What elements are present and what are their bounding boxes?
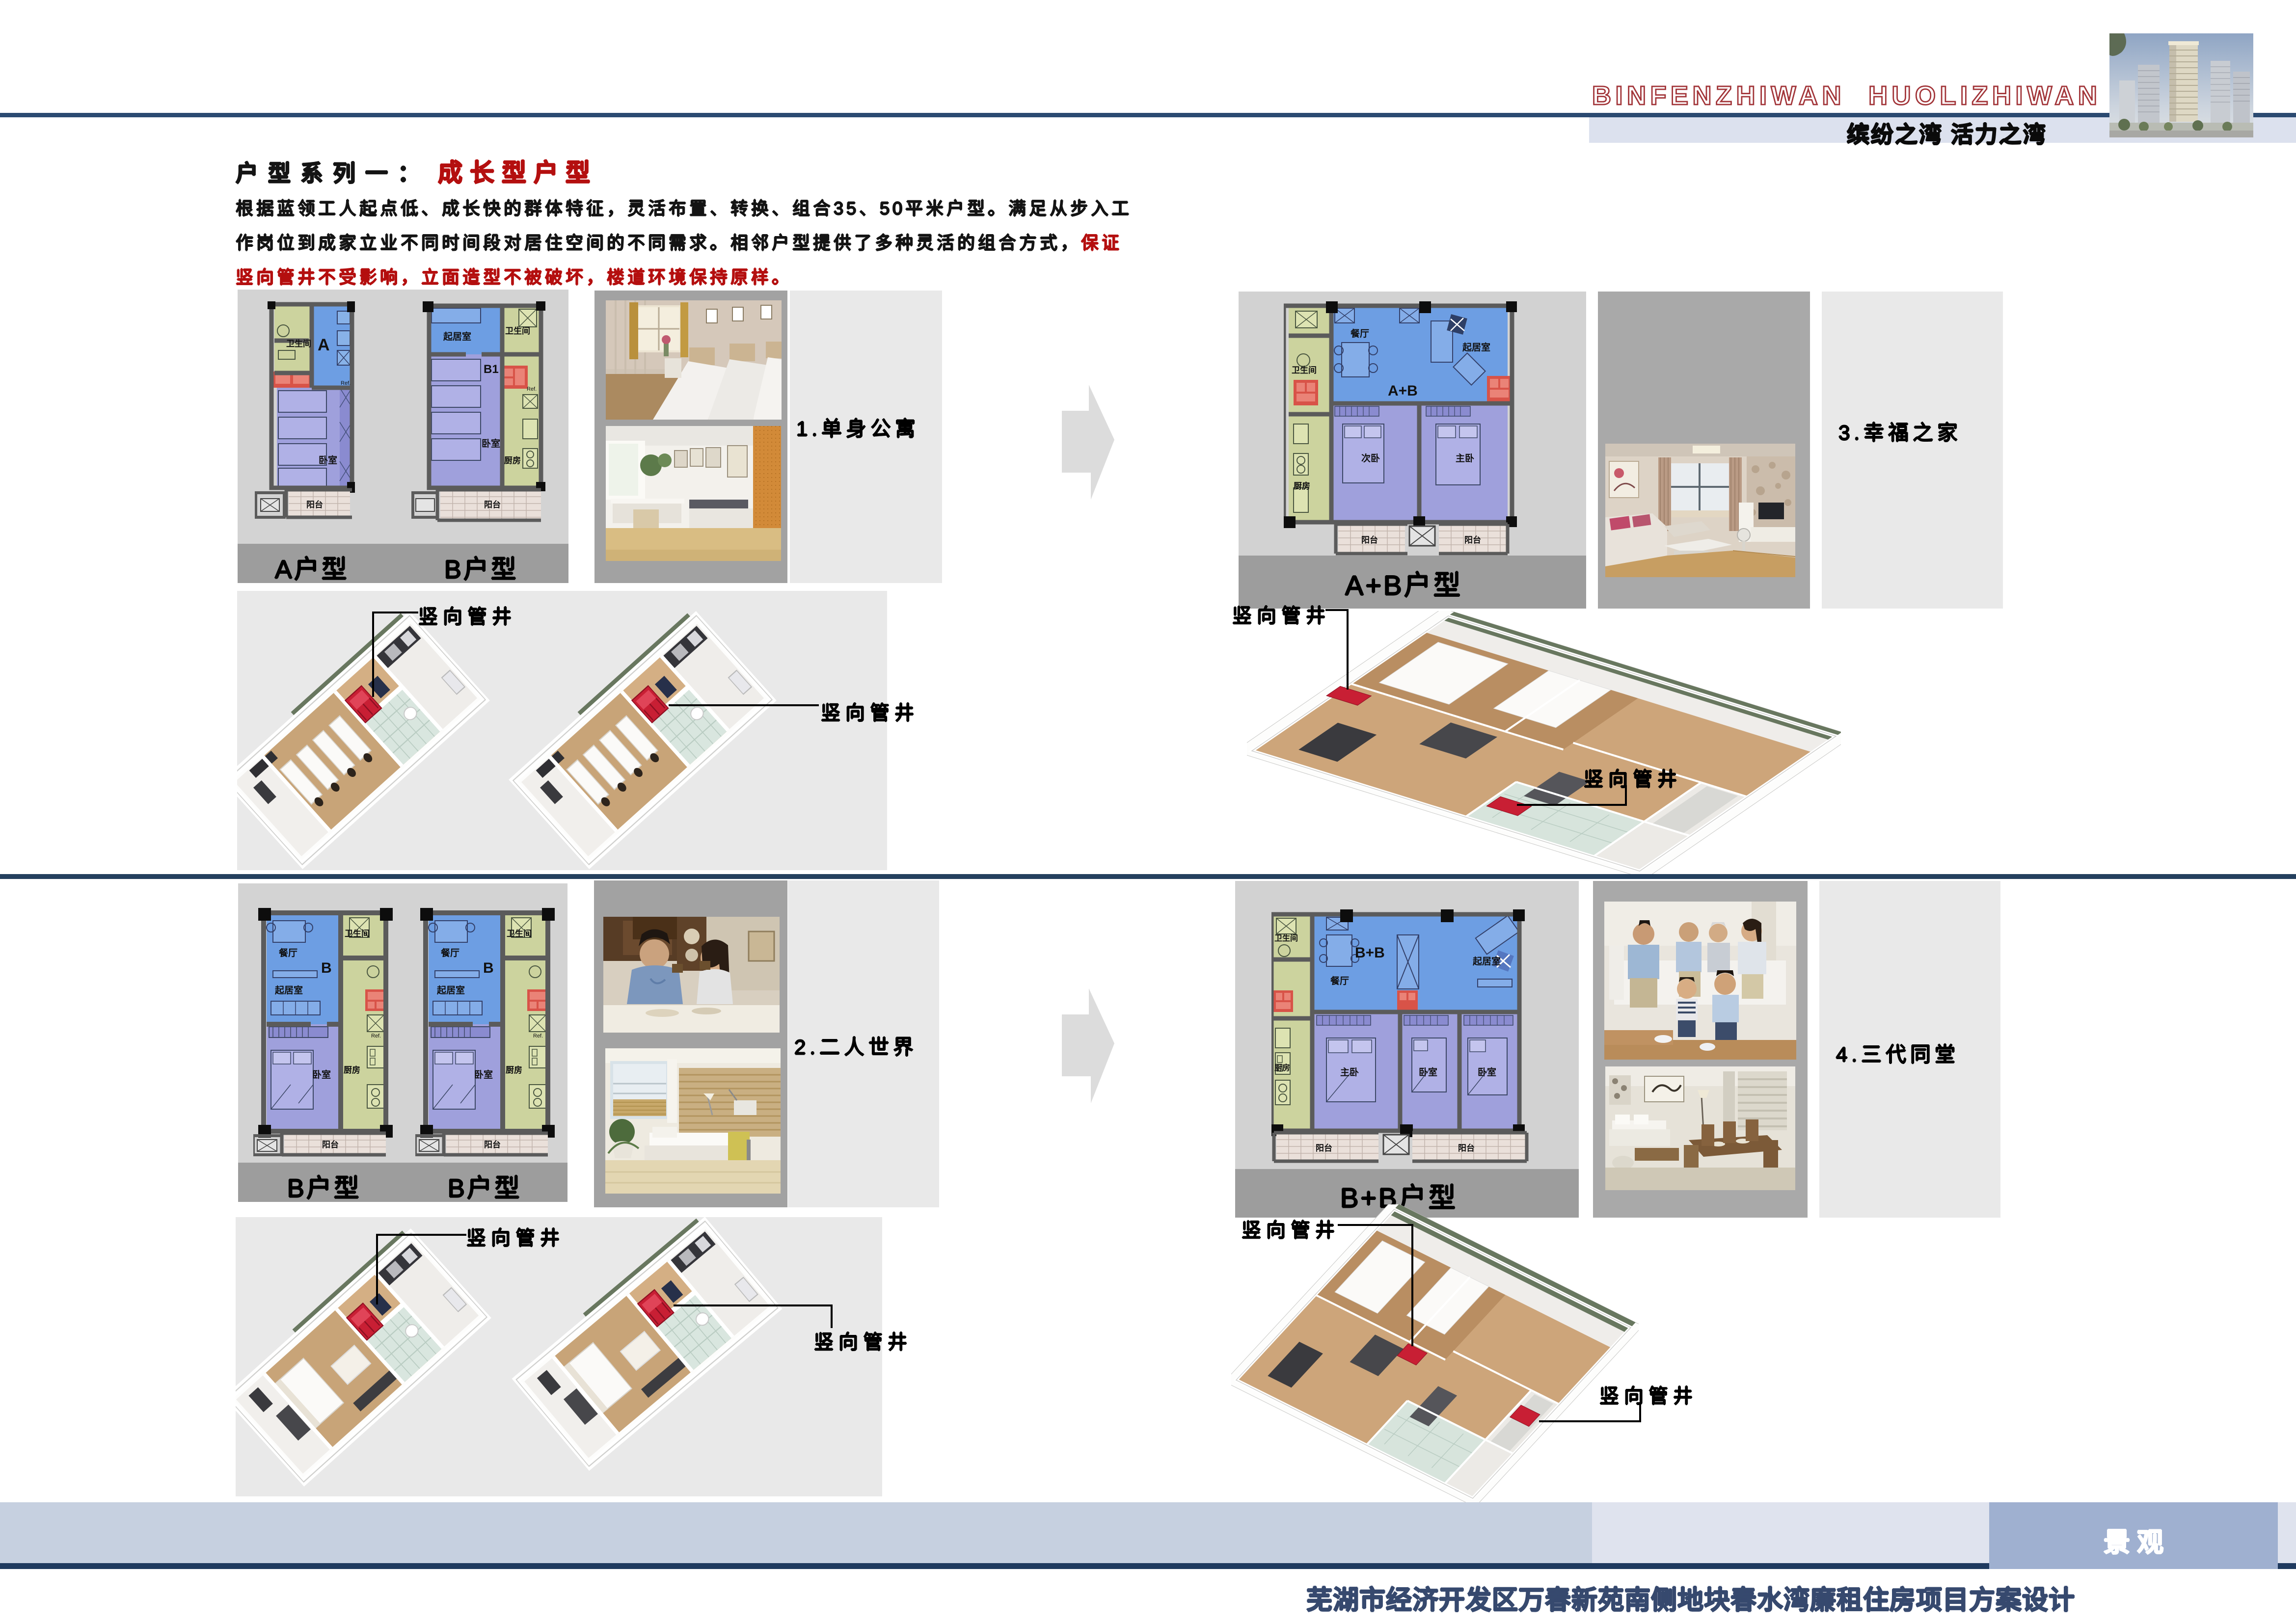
svg-text:起居室: 起居室	[1462, 342, 1490, 353]
svg-text:Ref.: Ref.	[533, 1033, 543, 1039]
svg-text:厨房: 厨房	[344, 1065, 360, 1075]
svg-text:阳台: 阳台	[484, 500, 501, 509]
svg-text:卫生间: 卫生间	[1274, 933, 1298, 943]
svg-text:卫生间: 卫生间	[507, 929, 532, 938]
svg-text:阳台: 阳台	[1464, 535, 1481, 545]
svg-text:阳台: 阳台	[1316, 1143, 1332, 1153]
svg-text:卧室: 卧室	[1478, 1066, 1496, 1078]
svg-text:厨房: 厨房	[1274, 1063, 1290, 1072]
svg-text:阳台: 阳台	[1458, 1143, 1475, 1153]
svg-text:起居室: 起居室	[1472, 956, 1501, 967]
svg-text:卫生间: 卫生间	[505, 326, 530, 336]
svg-text:阳台: 阳台	[306, 500, 323, 509]
svg-text:A+B: A+B	[1388, 383, 1418, 399]
svg-text:卫生间: 卫生间	[286, 339, 311, 348]
svg-text:餐厅: 餐厅	[441, 947, 459, 958]
svg-text:Ref.: Ref.	[527, 386, 537, 392]
svg-text:厨房: 厨房	[506, 1065, 522, 1075]
svg-text:A: A	[318, 336, 330, 354]
svg-text:餐厅: 餐厅	[1330, 975, 1349, 986]
svg-text:卧室: 卧室	[312, 1069, 331, 1080]
svg-text:起居室: 起居室	[436, 984, 465, 996]
svg-text:B: B	[321, 960, 332, 976]
svg-text:主卧: 主卧	[1456, 453, 1474, 464]
svg-text:阳台: 阳台	[484, 1140, 501, 1149]
svg-text:卧室: 卧室	[474, 1069, 493, 1080]
svg-text:Ref.: Ref.	[371, 1033, 381, 1039]
svg-text:Ref.: Ref.	[341, 380, 351, 386]
svg-text:阳台: 阳台	[1361, 535, 1378, 545]
svg-text:B: B	[483, 960, 494, 976]
svg-text:B+B: B+B	[1355, 945, 1385, 961]
svg-text:次卧: 次卧	[1361, 452, 1380, 464]
svg-text:卧室: 卧室	[1419, 1066, 1437, 1078]
svg-text:起居室: 起居室	[274, 984, 303, 996]
svg-text:B1: B1	[484, 363, 499, 376]
svg-text:起居室: 起居室	[443, 331, 471, 342]
svg-text:厨房: 厨房	[1294, 481, 1310, 491]
svg-text:卫生间: 卫生间	[1292, 365, 1317, 375]
svg-text:主卧: 主卧	[1340, 1067, 1359, 1078]
svg-text:阳台: 阳台	[322, 1140, 339, 1149]
svg-text:餐厅: 餐厅	[1351, 328, 1369, 339]
svg-text:卧室: 卧室	[319, 454, 337, 466]
svg-text:卫生间: 卫生间	[345, 929, 370, 938]
svg-text:餐厅: 餐厅	[279, 947, 297, 958]
svg-text:卧室: 卧室	[482, 438, 500, 449]
svg-text:厨房: 厨房	[504, 455, 521, 465]
